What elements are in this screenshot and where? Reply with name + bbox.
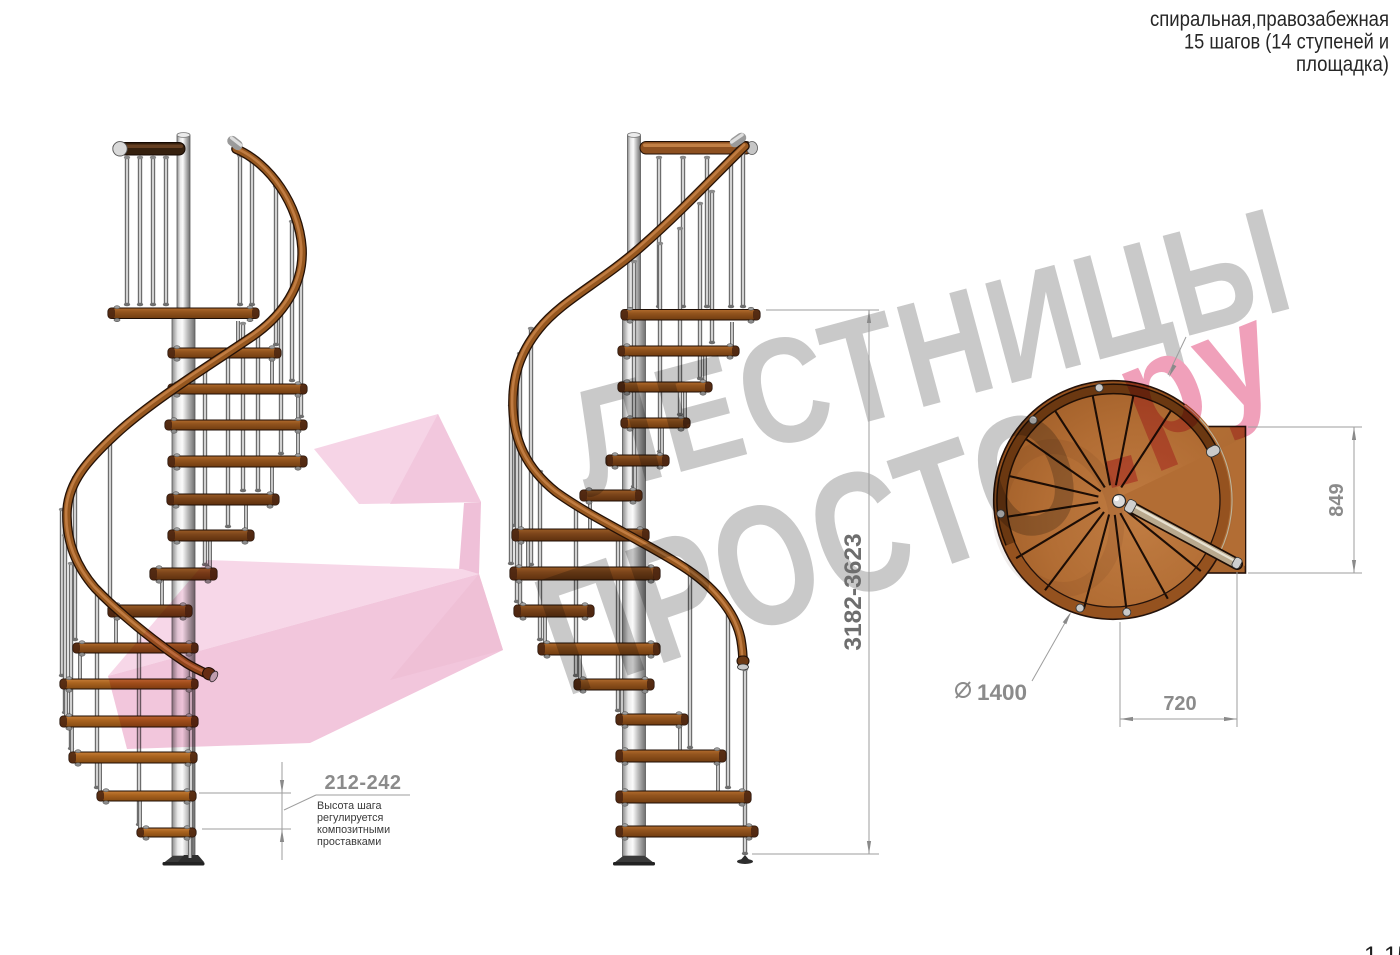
svg-text:композитными: композитными [317, 824, 390, 836]
svg-text:849: 849 [1326, 483, 1348, 516]
svg-text:спиральная,правозабежная: спиральная,правозабежная [1150, 7, 1389, 31]
svg-text:1400: 1400 [977, 680, 1027, 705]
svg-text:15 шагов (14 ступеней и: 15 шагов (14 ступеней и [1184, 30, 1389, 54]
svg-text:212-242: 212-242 [325, 772, 402, 794]
svg-text:1.15: 1.15 [1364, 942, 1400, 955]
svg-text:Высота шага: Высота шага [317, 800, 381, 812]
svg-text:проставками: проставками [317, 836, 381, 848]
svg-text:регулируется: регулируется [317, 812, 383, 824]
svg-text:3182-3623: 3182-3623 [840, 533, 867, 650]
svg-text:720: 720 [1163, 693, 1196, 715]
svg-text:площадка): площадка) [1296, 52, 1389, 76]
